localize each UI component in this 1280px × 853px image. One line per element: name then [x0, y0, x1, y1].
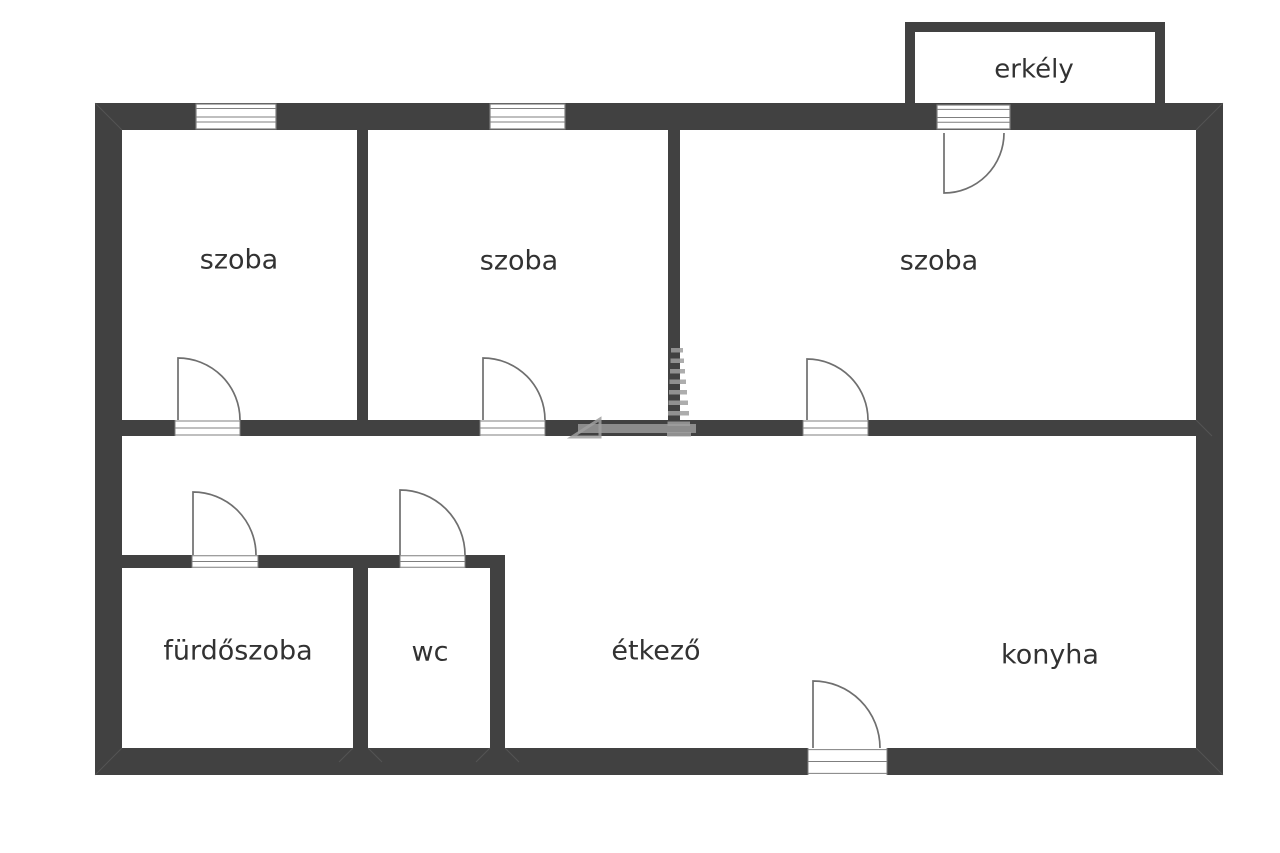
floor-plan-page: szobaszobaszobaerkélyfürdőszobawcétkezők… — [0, 0, 1280, 853]
bathroom-door — [193, 492, 256, 555]
balcony-left-wall — [905, 22, 915, 103]
watermark-logo-bar-1 — [671, 359, 685, 364]
outer-bottom-wall — [95, 748, 1223, 775]
balcony-right-wall — [1155, 22, 1165, 103]
balcony-top-wall — [905, 22, 1165, 32]
room-konyha-label: konyha — [1001, 640, 1099, 671]
room-szoba-2-label: szoba — [480, 246, 558, 277]
wc-door — [400, 490, 465, 555]
watermark-logo-bar-3 — [670, 380, 687, 385]
room-erkely-label: erkély — [994, 55, 1073, 85]
watermark-logo-baseline — [578, 424, 696, 433]
room-furdoszoba-label: fürdőszoba — [163, 636, 312, 667]
watermark-logo-bar-5 — [669, 401, 689, 406]
szoba-1-door — [178, 358, 240, 420]
watermark-logo-bar-2 — [670, 369, 685, 374]
bathroom-wc-divider — [353, 555, 368, 748]
room-wc-label: wc — [412, 637, 449, 668]
divider-szoba1-szoba2 — [357, 130, 368, 436]
watermark-logo-bar-6 — [668, 411, 689, 416]
entrance-door — [813, 681, 880, 748]
outer-left-wall — [95, 103, 122, 775]
outer-right-wall — [1196, 103, 1223, 775]
balcony-door — [944, 133, 1004, 193]
szoba-3-door — [807, 359, 868, 420]
room-szoba-1-label: szoba — [200, 245, 278, 276]
watermark-logo-bar-4 — [669, 390, 687, 395]
room-szoba-3-label: szoba — [900, 246, 978, 277]
floor-plan: szobaszobaszobaerkélyfürdőszobawcétkezők… — [0, 0, 1280, 853]
szoba-2-door — [483, 358, 545, 420]
room-etkezo-label: étkező — [611, 636, 700, 667]
watermark-logo-bar-0 — [671, 348, 683, 353]
wc-right-wall — [490, 555, 505, 748]
